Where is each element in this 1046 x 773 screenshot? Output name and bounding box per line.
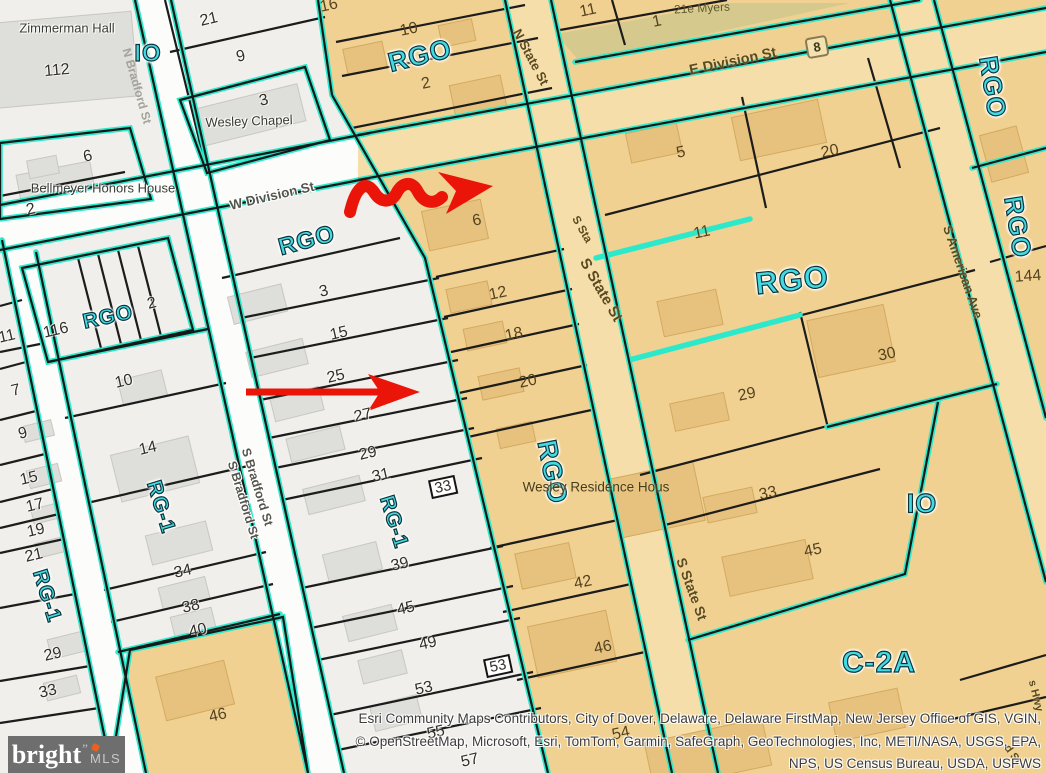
logo-suffix: MLS — [90, 751, 121, 766]
building-label-zimmerman-hall: Zimmerman Hall — [19, 22, 114, 35]
zone-label-io: IO — [907, 491, 938, 518]
map-canvas[interactable]: RGO RGO RGO RGO RGO RGO RGO IO IO RG-1 R… — [0, 0, 1046, 773]
attribution-line: NPS, US Census Bureau, USDA, USFWS — [789, 756, 1041, 771]
bright-mls-logo: bright ” MLS — [8, 736, 125, 773]
building-label-bellmeyer: Bellmeyer Honors House — [31, 182, 176, 195]
building-label-myers: 21e Myers — [674, 1, 731, 16]
zone-label-rgo: RGO — [754, 261, 830, 300]
attribution-line: Esri Community Maps Contributors, City o… — [359, 711, 1041, 726]
attribution-line: © OpenStreetMap, Microsoft, Esri, TomTom… — [356, 734, 1041, 749]
building-label-wesley-chapel: Wesley Chapel — [205, 113, 293, 129]
parcel-number: 11 — [578, 1, 598, 20]
route-shield: 8 — [804, 35, 829, 60]
zone-label-io: IO — [134, 42, 161, 66]
building-label-wesley-residence: Wesley Residence Hous — [523, 480, 670, 494]
parcel-number: 11 — [692, 223, 712, 242]
logo-quote-mark: ” — [82, 741, 88, 757]
route-shield-number: 8 — [812, 39, 822, 55]
logo-wordmark: bright — [12, 740, 81, 770]
parcel-number: 112 — [44, 62, 71, 80]
parcel-number: 144 — [1014, 268, 1042, 286]
zone-label-c2a: C-2A — [842, 648, 916, 678]
